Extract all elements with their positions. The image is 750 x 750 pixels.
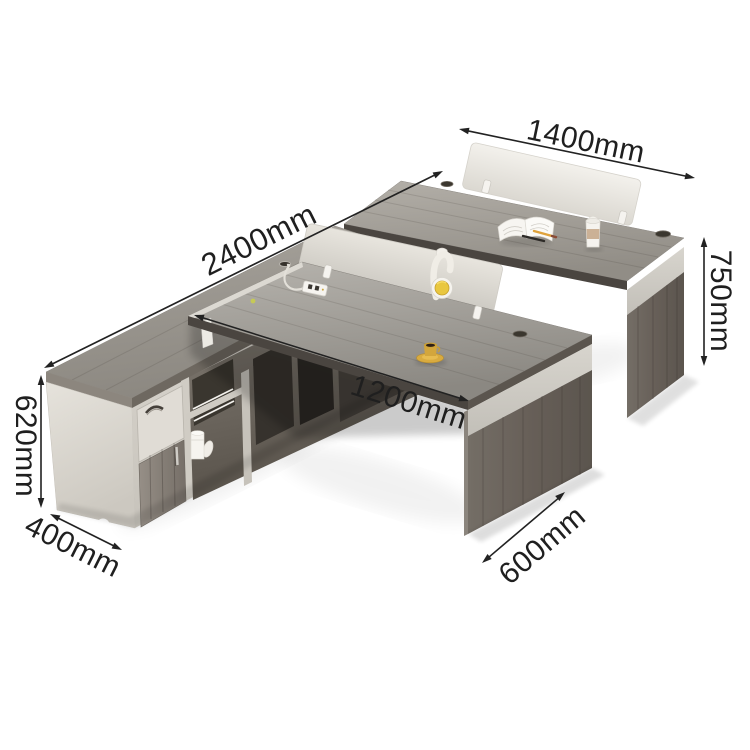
dim-2400-arrowhead-top — [433, 171, 443, 178]
latte-cup-lid — [586, 218, 600, 223]
dim-620-label: 620mm — [9, 395, 42, 498]
grommet-hole-front — [513, 331, 527, 337]
front-desk-leg-front-edge — [464, 410, 468, 536]
product-dimension-diagram: 1400mm 2400mm 750mm 620mm 400mm — [0, 0, 750, 750]
diagram-canvas: 1400mm 2400mm 750mm 620mm 400mm — [0, 0, 750, 750]
dim-2400-arrowhead-bottom — [44, 361, 54, 368]
dim-620-arrowhead-bottom — [38, 498, 45, 508]
dim-1400-arrowhead-left — [459, 128, 470, 135]
pencil-tip — [552, 236, 556, 237]
dim-750-arrowhead-top — [701, 237, 708, 247]
espresso-coffee — [426, 344, 435, 347]
dim-620: 620mm — [9, 375, 44, 508]
white-mug-body — [191, 433, 204, 459]
dim-750-arrowhead-bottom — [701, 356, 708, 366]
open-book — [498, 217, 556, 246]
latte-cup-sleeve — [587, 229, 600, 239]
grommet-hole-back-left — [441, 181, 453, 186]
white-mug-lid — [191, 431, 204, 436]
dim-750-label: 750mm — [704, 250, 737, 353]
dim-620-arrowhead-top — [38, 375, 45, 385]
dim-1400-arrowhead-right — [685, 173, 696, 180]
door-handle — [177, 447, 178, 465]
desk-speck — [251, 299, 256, 304]
grommet-hole-back-right — [656, 231, 671, 237]
dim-750: 750mm — [701, 237, 737, 366]
